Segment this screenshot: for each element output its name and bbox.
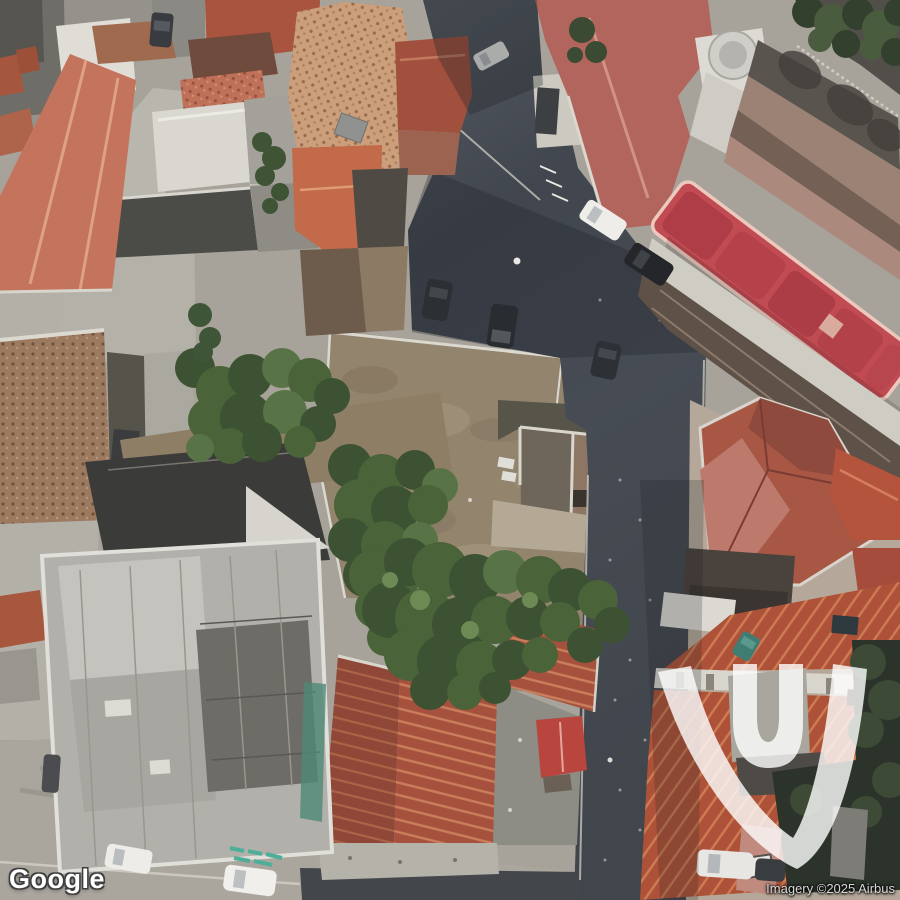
car [41, 754, 61, 793]
scaffold-net [300, 682, 326, 822]
imagery-attribution: Imagery ©2025 Airbus [766, 881, 895, 896]
car [149, 12, 174, 48]
dark-roof-section [352, 168, 408, 250]
car [696, 849, 754, 880]
concrete-rooftop [42, 540, 332, 872]
car [754, 858, 785, 882]
satellite-image [0, 0, 900, 900]
map-viewport[interactable]: Google Imagery ©2025 Airbus [0, 0, 900, 900]
google-logo[interactable]: Google [9, 864, 105, 895]
front-walkway [318, 843, 499, 880]
